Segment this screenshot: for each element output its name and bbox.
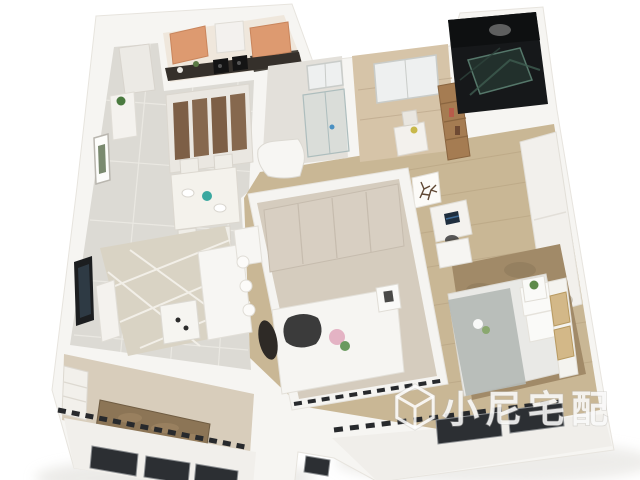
sofa-pillow (237, 256, 249, 268)
books (455, 126, 460, 135)
cabinet-glass-door (230, 93, 247, 151)
flowers-leaves (340, 341, 350, 351)
watermark-text: 小尼宅配 (442, 388, 614, 431)
table-decor (184, 326, 189, 331)
kitchen-cabinet-right (250, 22, 291, 58)
plate (214, 204, 226, 212)
antler-art-board (412, 172, 441, 208)
jacket-on-bed (283, 314, 321, 348)
burner (218, 64, 222, 68)
photo-frame (383, 290, 393, 302)
cabinet-glass-door (173, 101, 190, 160)
entry-door (119, 44, 155, 94)
burner (237, 61, 241, 65)
toiletry-item (330, 125, 335, 130)
wall-art-picture (98, 144, 106, 174)
books (449, 108, 454, 117)
sofa-pillow (240, 280, 252, 292)
table-decor (176, 318, 181, 323)
desk-flowers (411, 127, 418, 134)
entry-plant (117, 97, 126, 106)
dark-bathroom (448, 12, 548, 114)
bench (436, 238, 472, 268)
cabinet-glass-door (211, 96, 228, 154)
headboard-art (550, 292, 570, 326)
toilet (489, 24, 511, 36)
floorplan-render: 小尼宅配 (0, 0, 640, 480)
cabinet-glass-door (192, 98, 209, 157)
flowers-on-bed-leaves (482, 326, 490, 334)
study-desk (394, 122, 428, 156)
nightstand-plant (530, 281, 539, 290)
study-chair (402, 110, 418, 126)
plate (182, 189, 194, 197)
table-plant (202, 191, 212, 201)
kitchen-sink (177, 67, 183, 73)
tv-screen (78, 264, 91, 318)
sofa-pillow (243, 304, 255, 316)
kitchen-plant (193, 61, 199, 67)
coffee-table (160, 300, 200, 344)
bathtub (258, 139, 305, 178)
flowers-on-bed (473, 319, 483, 329)
headboard-art (554, 326, 574, 360)
floorplan-svg: 小尼宅配 (0, 0, 640, 480)
bedroom2-face-window (304, 456, 330, 476)
range-hood (215, 21, 245, 53)
